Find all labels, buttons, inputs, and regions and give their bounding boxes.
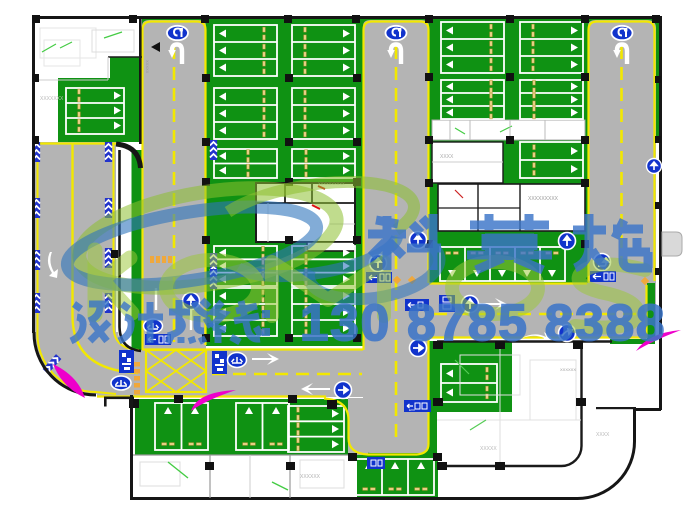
svg-text:XXXXXXXXX: XXXXXXXXX [528,196,559,202]
svg-text:XXXX: XXXX [440,154,454,160]
svg-text:XXXXXXX: XXXXXXX [40,96,64,102]
svg-text:XXXX: XXXX [596,432,610,438]
svg-text:XXXXX: XXXXX [145,60,150,74]
svg-text:XXXXXX: XXXXXX [300,474,321,480]
svg-text:XXXXXX: XXXXXX [560,367,576,372]
svg-text:XXXXX: XXXXX [480,446,497,452]
svg-text:EXIT: EXIT [409,408,416,412]
svg-text:130 8785 8388: 130 8785 8388 [300,294,666,351]
